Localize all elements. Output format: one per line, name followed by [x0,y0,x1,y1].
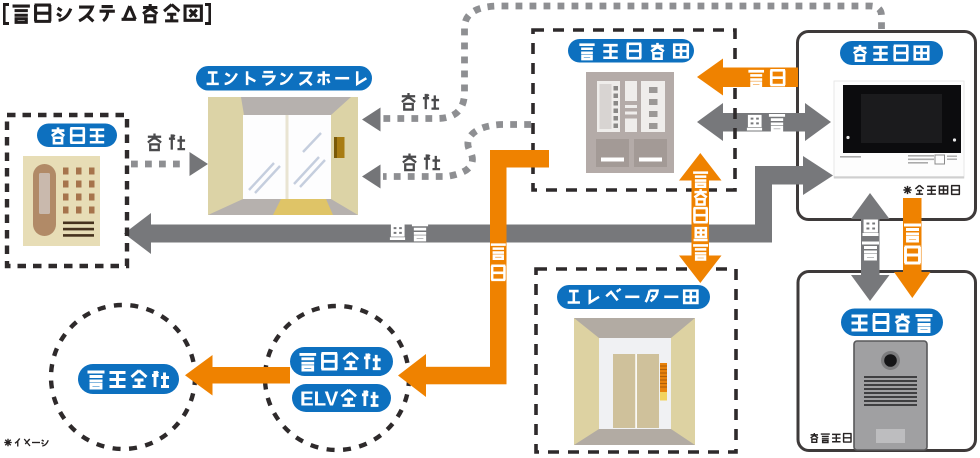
svg-text:ELV: ELV [300,388,339,411]
